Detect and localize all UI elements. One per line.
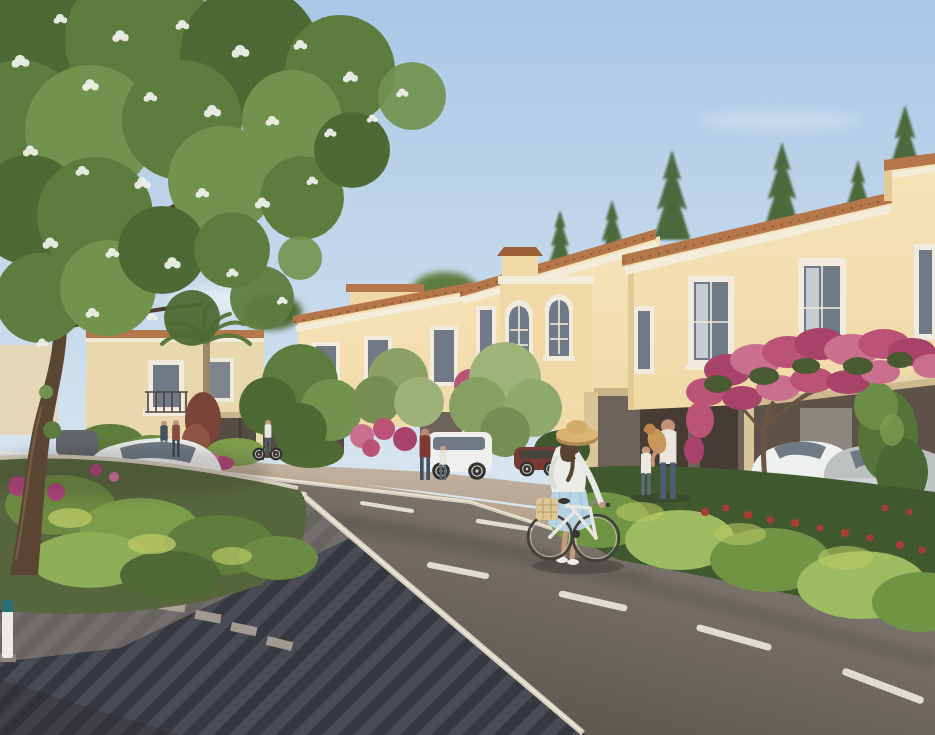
mini-hip-roof: [497, 247, 543, 256]
arched-window-2: [543, 294, 575, 361]
community-street-render: Photorealistic rendering of a Mediterran…: [0, 0, 935, 735]
villa-window-balcony: [143, 360, 189, 416]
bicycle-basket: [536, 498, 558, 520]
render-canvas: [0, 0, 935, 735]
